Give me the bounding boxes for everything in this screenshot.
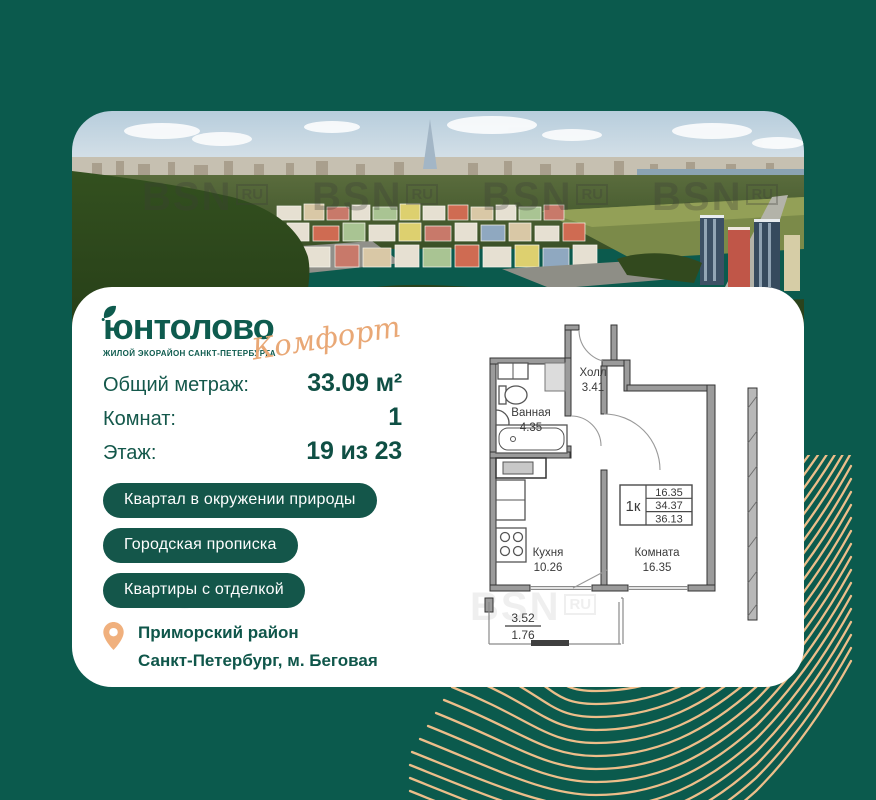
flat-area: 34.37: [655, 500, 683, 512]
flat-type: 1к: [626, 498, 641, 515]
feature-badge: Квартал в окружении природы: [103, 483, 377, 518]
listing-banner: BSNRU BSNRU BSNRU BSNRU BSNRU BSNRU юнто…: [0, 0, 876, 800]
fact-label: Комнат:: [103, 408, 176, 431]
bsn-watermark: BSNRU: [312, 177, 438, 217]
location-block: Приморский район Санкт-Петербург, м. Бег…: [103, 619, 378, 675]
fact-value: 19 из 23: [306, 437, 402, 466]
feature-badges: Квартал в окружении природы Городская пр…: [103, 483, 377, 618]
balcony: 3.52 1.76: [485, 598, 623, 646]
fact-row-floor: Этаж: 19 из 23: [103, 437, 402, 471]
structural-wall: [748, 388, 757, 620]
listing-card: BSNRU BSNRU юнтолово ЖИЛОЙ ЭКОРАЙОН САНК…: [72, 287, 804, 687]
area-table: 1к 16.35 34.37 36.13: [620, 485, 692, 526]
feature-badge: Квартиры с отделкой: [103, 573, 305, 608]
location-district: Приморский район: [138, 619, 378, 647]
location-city: Санкт-Петербург, м. Беговая: [138, 647, 378, 675]
brand-logo: юнтолово ЖИЛОЙ ЭКОРАЙОН САНКТ-ПЕТЕРБУРГА…: [103, 309, 433, 367]
room-name: Кухня: [533, 547, 564, 559]
room-name: Ванная: [511, 407, 550, 419]
fact-row-rooms: Комнат: 1: [103, 403, 402, 437]
fact-label: Общий метраж:: [103, 374, 249, 397]
room-area: 3.41: [582, 382, 604, 394]
key-facts: Общий метраж: 33.09 м² Комнат: 1 Этаж: 1…: [103, 369, 402, 471]
room-name: Комната: [634, 547, 680, 559]
balcony-area-full: 3.52: [511, 611, 535, 625]
total-area: 36.13: [655, 514, 683, 526]
fact-label: Этаж:: [103, 442, 156, 465]
fact-value: 33.09 м²: [307, 369, 402, 398]
bsn-watermark: BSNRU: [142, 177, 268, 217]
floor-plan: 3.52 1.76 1к 16.35 34.37 36.13 Холл 3.41…: [473, 318, 765, 658]
bsn-watermark: BSNRU: [482, 177, 608, 217]
leaf-icon: [101, 304, 117, 321]
feature-badge: Городская прописка: [103, 528, 298, 563]
room-area: 16.35: [643, 562, 672, 574]
room-name: Холл: [579, 367, 606, 379]
map-pin-icon: [103, 622, 124, 650]
bsn-watermark: BSNRU: [652, 177, 778, 217]
fact-row-total-area: Общий метраж: 33.09 м²: [103, 369, 402, 403]
balcony-area-reduced: 1.76: [511, 628, 535, 642]
fact-value: 1: [388, 403, 402, 432]
room-area: 10.26: [534, 562, 563, 574]
living-area: 16.35: [655, 487, 683, 499]
room-area: 4.35: [520, 422, 542, 434]
